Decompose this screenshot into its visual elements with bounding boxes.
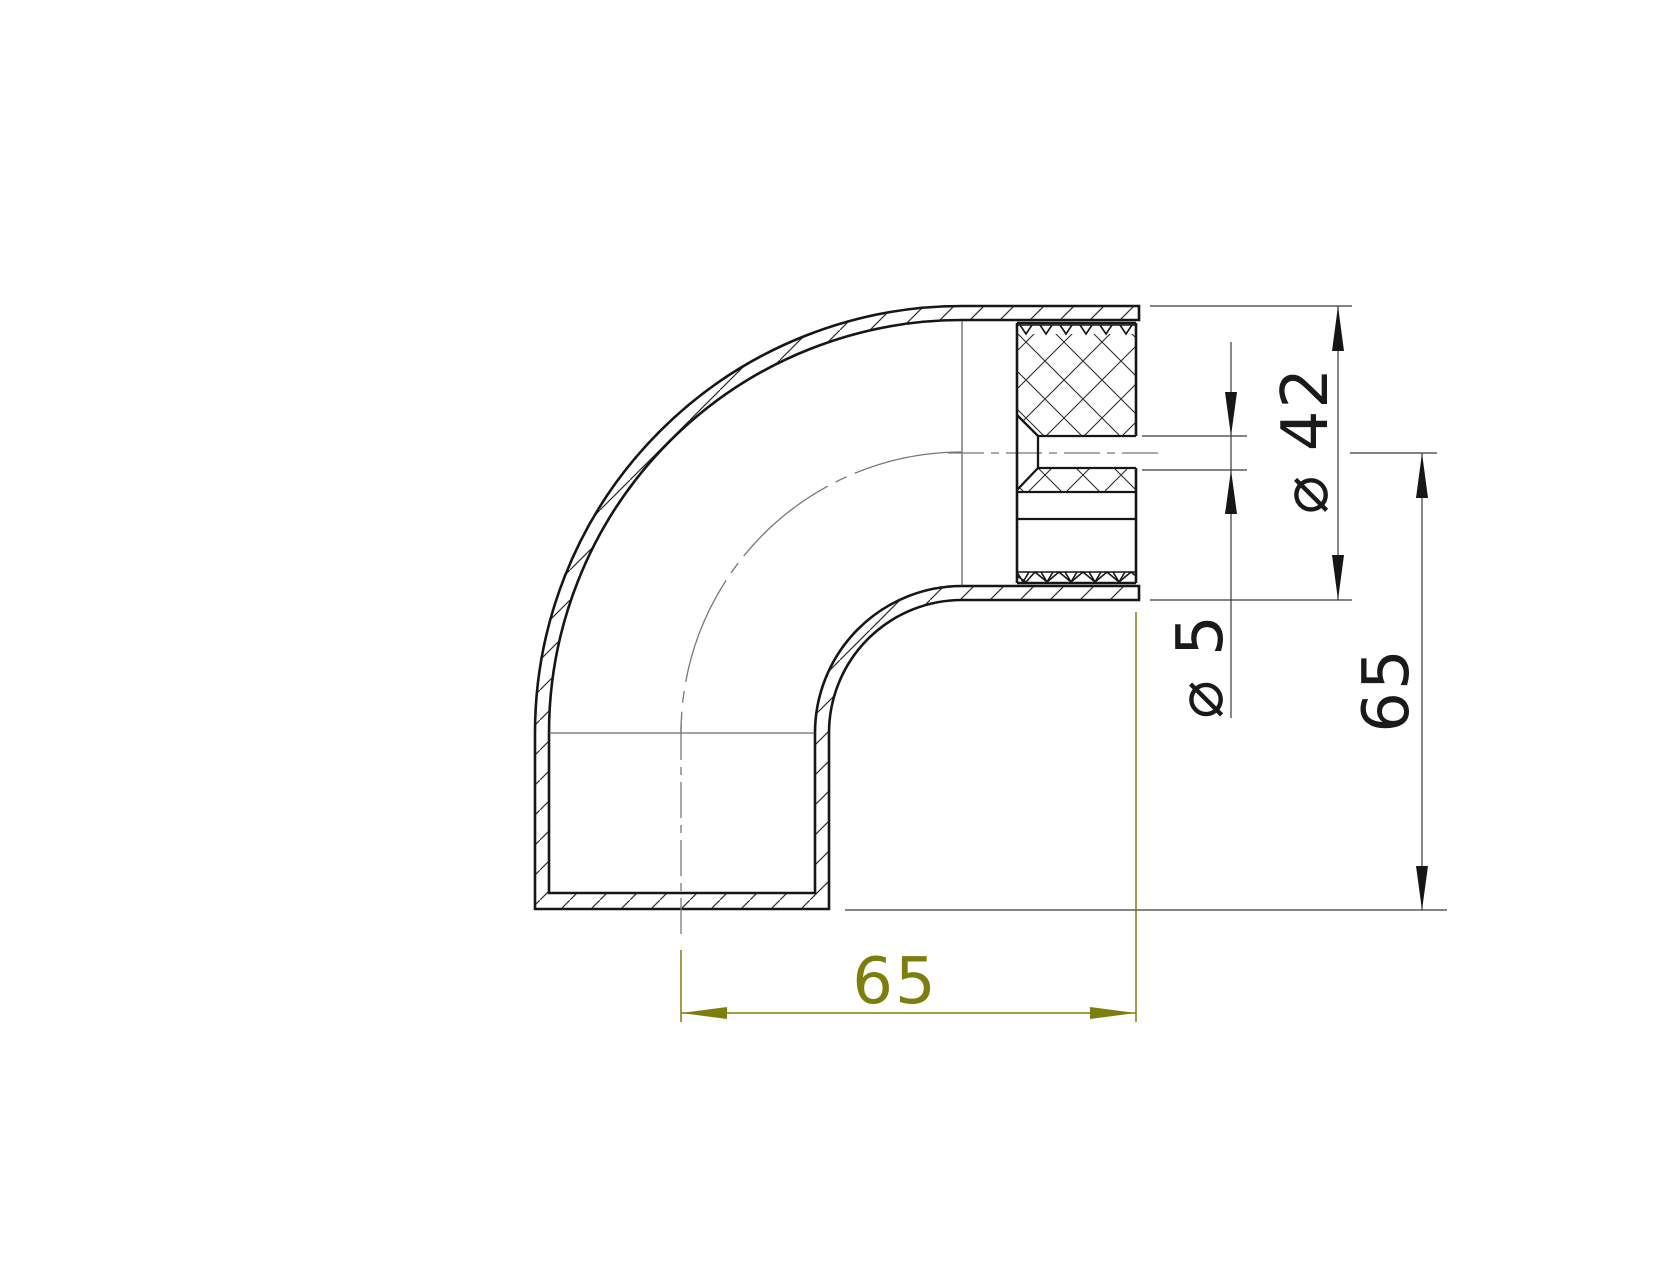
dim-42-arrow-up <box>1332 306 1344 351</box>
centerlines <box>681 452 1158 937</box>
dimension-outer-diameter: ⌀ 42 <box>1150 306 1352 600</box>
dimension-center-to-end: 65 <box>681 612 1136 1022</box>
dim-65h-arrow-right <box>1090 1007 1136 1019</box>
dim-label-hole-diameter: ⌀ 5 <box>1164 613 1238 719</box>
dim-65h-arrow-left <box>681 1007 727 1019</box>
dim-42-arrow-down <box>1332 555 1344 600</box>
dim-65v-arrow-top <box>1416 453 1428 498</box>
insert-knurl-top <box>1017 325 1136 334</box>
insert-crosshatch-upper <box>1017 334 1136 436</box>
drawing-sheet: ⌀ 42 ⌀ 5 65 65 <box>0 0 1680 1261</box>
insert-knurl-bottom <box>1017 572 1136 582</box>
dim-label-center-to-end: 65 <box>852 945 937 1019</box>
dimension-center-to-bottom: 65 <box>845 453 1447 910</box>
cad-elbow-drawing: ⌀ 42 ⌀ 5 65 65 <box>0 0 1680 1261</box>
dim-65v-arrow-bottom <box>1416 866 1428 910</box>
dim-5-arrow-upper <box>1225 392 1237 436</box>
dimension-hole-diameter: ⌀ 5 <box>1142 342 1247 719</box>
dim-5-arrow-lower <box>1225 470 1237 514</box>
dim-label-outer-diameter: ⌀ 42 <box>1269 366 1343 514</box>
dim-label-center-to-bottom: 65 <box>1350 647 1424 732</box>
